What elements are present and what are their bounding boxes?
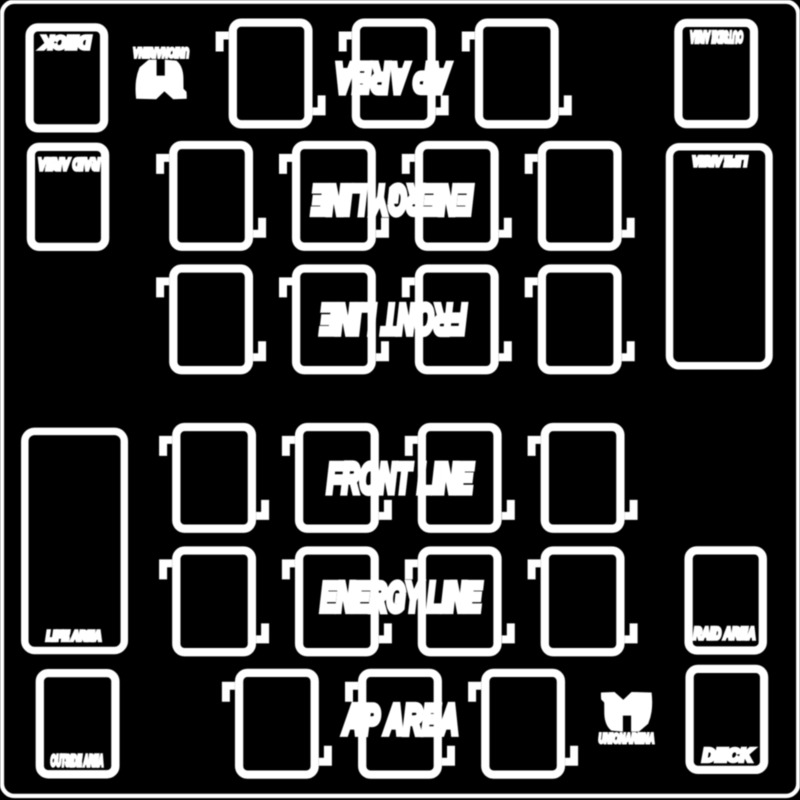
svg-text:ENERGY LINE: ENERGY LINE (321, 574, 483, 620)
svg-text:FRONT LINE: FRONT LINE (320, 296, 467, 343)
svg-text:RAID AREA: RAID AREA (694, 625, 756, 643)
svg-text:OUTSIDE AREA: OUTSIDE AREA (51, 753, 104, 770)
svg-text:DECK: DECK (703, 745, 755, 765)
svg-text:AP AREA: AP AREA (335, 54, 451, 101)
svg-text:ENERGY LINE: ENERGY LINE (311, 177, 473, 223)
svg-text:AP AREA: AP AREA (343, 696, 459, 743)
svg-text:RAID AREA: RAID AREA (38, 154, 100, 172)
svg-text:DECK: DECK (39, 32, 91, 52)
svg-text:UNIONARENA: UNIONARENA (133, 45, 189, 60)
svg-text:FRONT LINE: FRONT LINE (327, 454, 474, 501)
svg-text:UNIONARENA: UNIONARENA (599, 731, 655, 746)
svg-text:LIFE AREA: LIFE AREA (693, 154, 748, 169)
svg-text:LIFE AREA: LIFE AREA (46, 629, 101, 644)
svg-text:OUTSIDE AREA: OUTSIDE AREA (690, 27, 743, 44)
